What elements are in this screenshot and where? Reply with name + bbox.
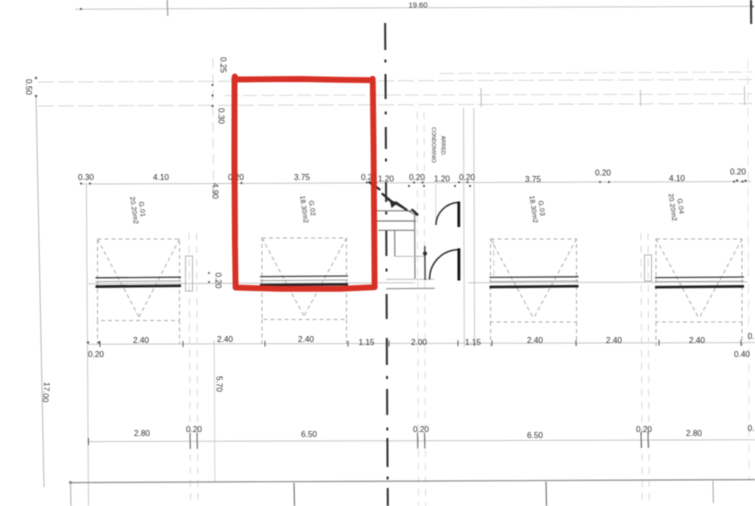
svg-text:6.50: 6.50: [301, 430, 317, 439]
svg-text:2.40: 2.40: [133, 336, 149, 345]
svg-text:0.: 0.: [748, 332, 755, 341]
svg-text:0.50: 0.50: [24, 79, 33, 95]
svg-text:0.20: 0.20: [409, 173, 425, 182]
svg-text:2.40: 2.40: [217, 335, 233, 344]
svg-text:0.30: 0.30: [217, 108, 226, 124]
svg-text:4.10: 4.10: [669, 174, 685, 183]
svg-text:3.75: 3.75: [525, 175, 541, 184]
svg-text:2.40: 2.40: [527, 336, 543, 345]
svg-text:0.25: 0.25: [219, 57, 228, 73]
svg-text:1.15: 1.15: [359, 338, 375, 347]
svg-text:20.20m2: 20.20m2: [128, 196, 139, 225]
svg-text:0.40: 0.40: [734, 350, 750, 359]
svg-text:2.80: 2.80: [134, 429, 150, 438]
svg-text:20.20m2: 20.20m2: [667, 193, 678, 222]
svg-text:4.10: 4.10: [153, 173, 169, 182]
svg-text:1.20: 1.20: [434, 175, 450, 184]
svg-text:0.20: 0.20: [186, 425, 202, 434]
svg-text:18.30m2: 18.30m2: [528, 195, 539, 224]
svg-text:2.40: 2.40: [689, 336, 705, 345]
svg-text:CONDOMINIO: CONDOMINIO: [430, 127, 436, 163]
svg-text:0.20: 0.20: [459, 173, 475, 182]
svg-text:2.40: 2.40: [298, 335, 314, 344]
svg-text:1.20: 1.20: [378, 175, 394, 184]
svg-text:2.00: 2.00: [411, 338, 427, 347]
svg-text:0.20: 0.20: [214, 273, 223, 289]
svg-text:1.15: 1.15: [465, 338, 481, 347]
svg-text:0.20: 0.20: [636, 425, 652, 434]
svg-text:4.90: 4.90: [211, 183, 220, 199]
svg-text:0.20: 0.20: [595, 169, 611, 178]
svg-text:0.20: 0.20: [413, 425, 429, 434]
svg-text:5.70: 5.70: [215, 376, 224, 392]
svg-text:0.: 0.: [748, 424, 755, 433]
svg-text:18.30m2: 18.30m2: [298, 195, 309, 224]
svg-text:2.80: 2.80: [686, 429, 702, 438]
svg-text:6.50: 6.50: [527, 431, 543, 440]
svg-text:3.75: 3.75: [294, 173, 310, 182]
svg-text:0.30: 0.30: [78, 173, 94, 182]
svg-text:17.00: 17.00: [41, 382, 52, 404]
svg-text:19.60: 19.60: [408, 1, 427, 10]
svg-text:2.40: 2.40: [606, 336, 622, 345]
svg-text:0.20: 0.20: [730, 168, 746, 177]
svg-text:0.20: 0.20: [88, 350, 104, 359]
svg-text:ARRED.: ARRED.: [440, 136, 446, 156]
